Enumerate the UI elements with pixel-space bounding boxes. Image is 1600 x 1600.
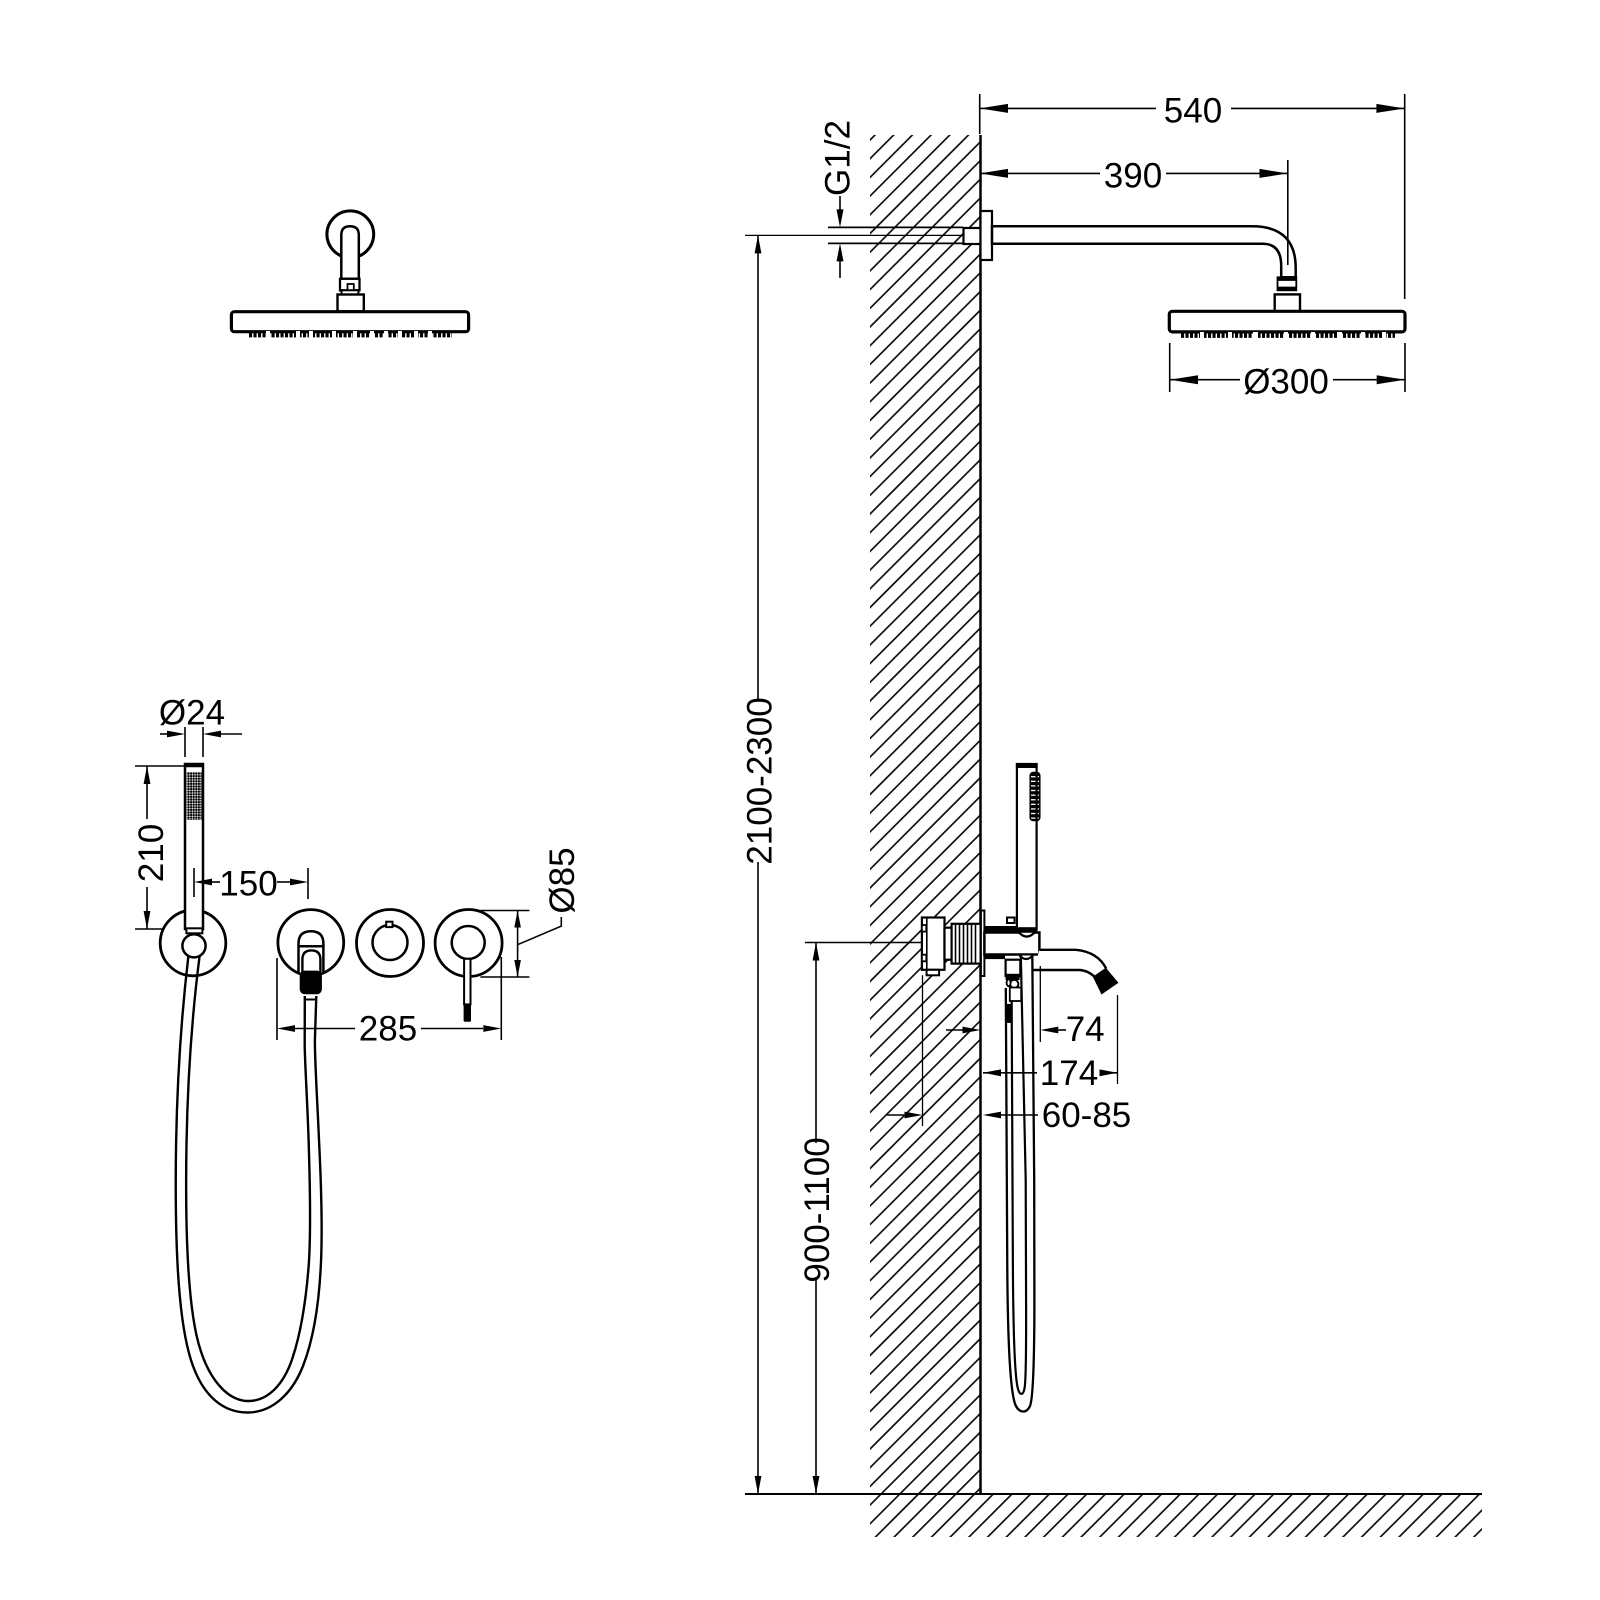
svg-text:540: 540 xyxy=(1164,92,1222,131)
svg-text:174: 174 xyxy=(1040,1054,1098,1093)
svg-text:390: 390 xyxy=(1104,157,1162,196)
svg-text:210: 210 xyxy=(132,824,171,882)
svg-text:150: 150 xyxy=(219,865,277,904)
svg-text:285: 285 xyxy=(359,1010,417,1049)
svg-text:Ø24: Ø24 xyxy=(159,694,225,733)
svg-text:60-85: 60-85 xyxy=(1042,1096,1132,1135)
svg-text:Ø85: Ø85 xyxy=(543,847,582,913)
svg-text:2100-2300: 2100-2300 xyxy=(741,697,780,864)
svg-text:Ø300: Ø300 xyxy=(1243,363,1329,402)
svg-text:G1/2: G1/2 xyxy=(819,120,858,196)
svg-text:74: 74 xyxy=(1066,1010,1105,1049)
svg-text:900-1100: 900-1100 xyxy=(798,1137,837,1282)
